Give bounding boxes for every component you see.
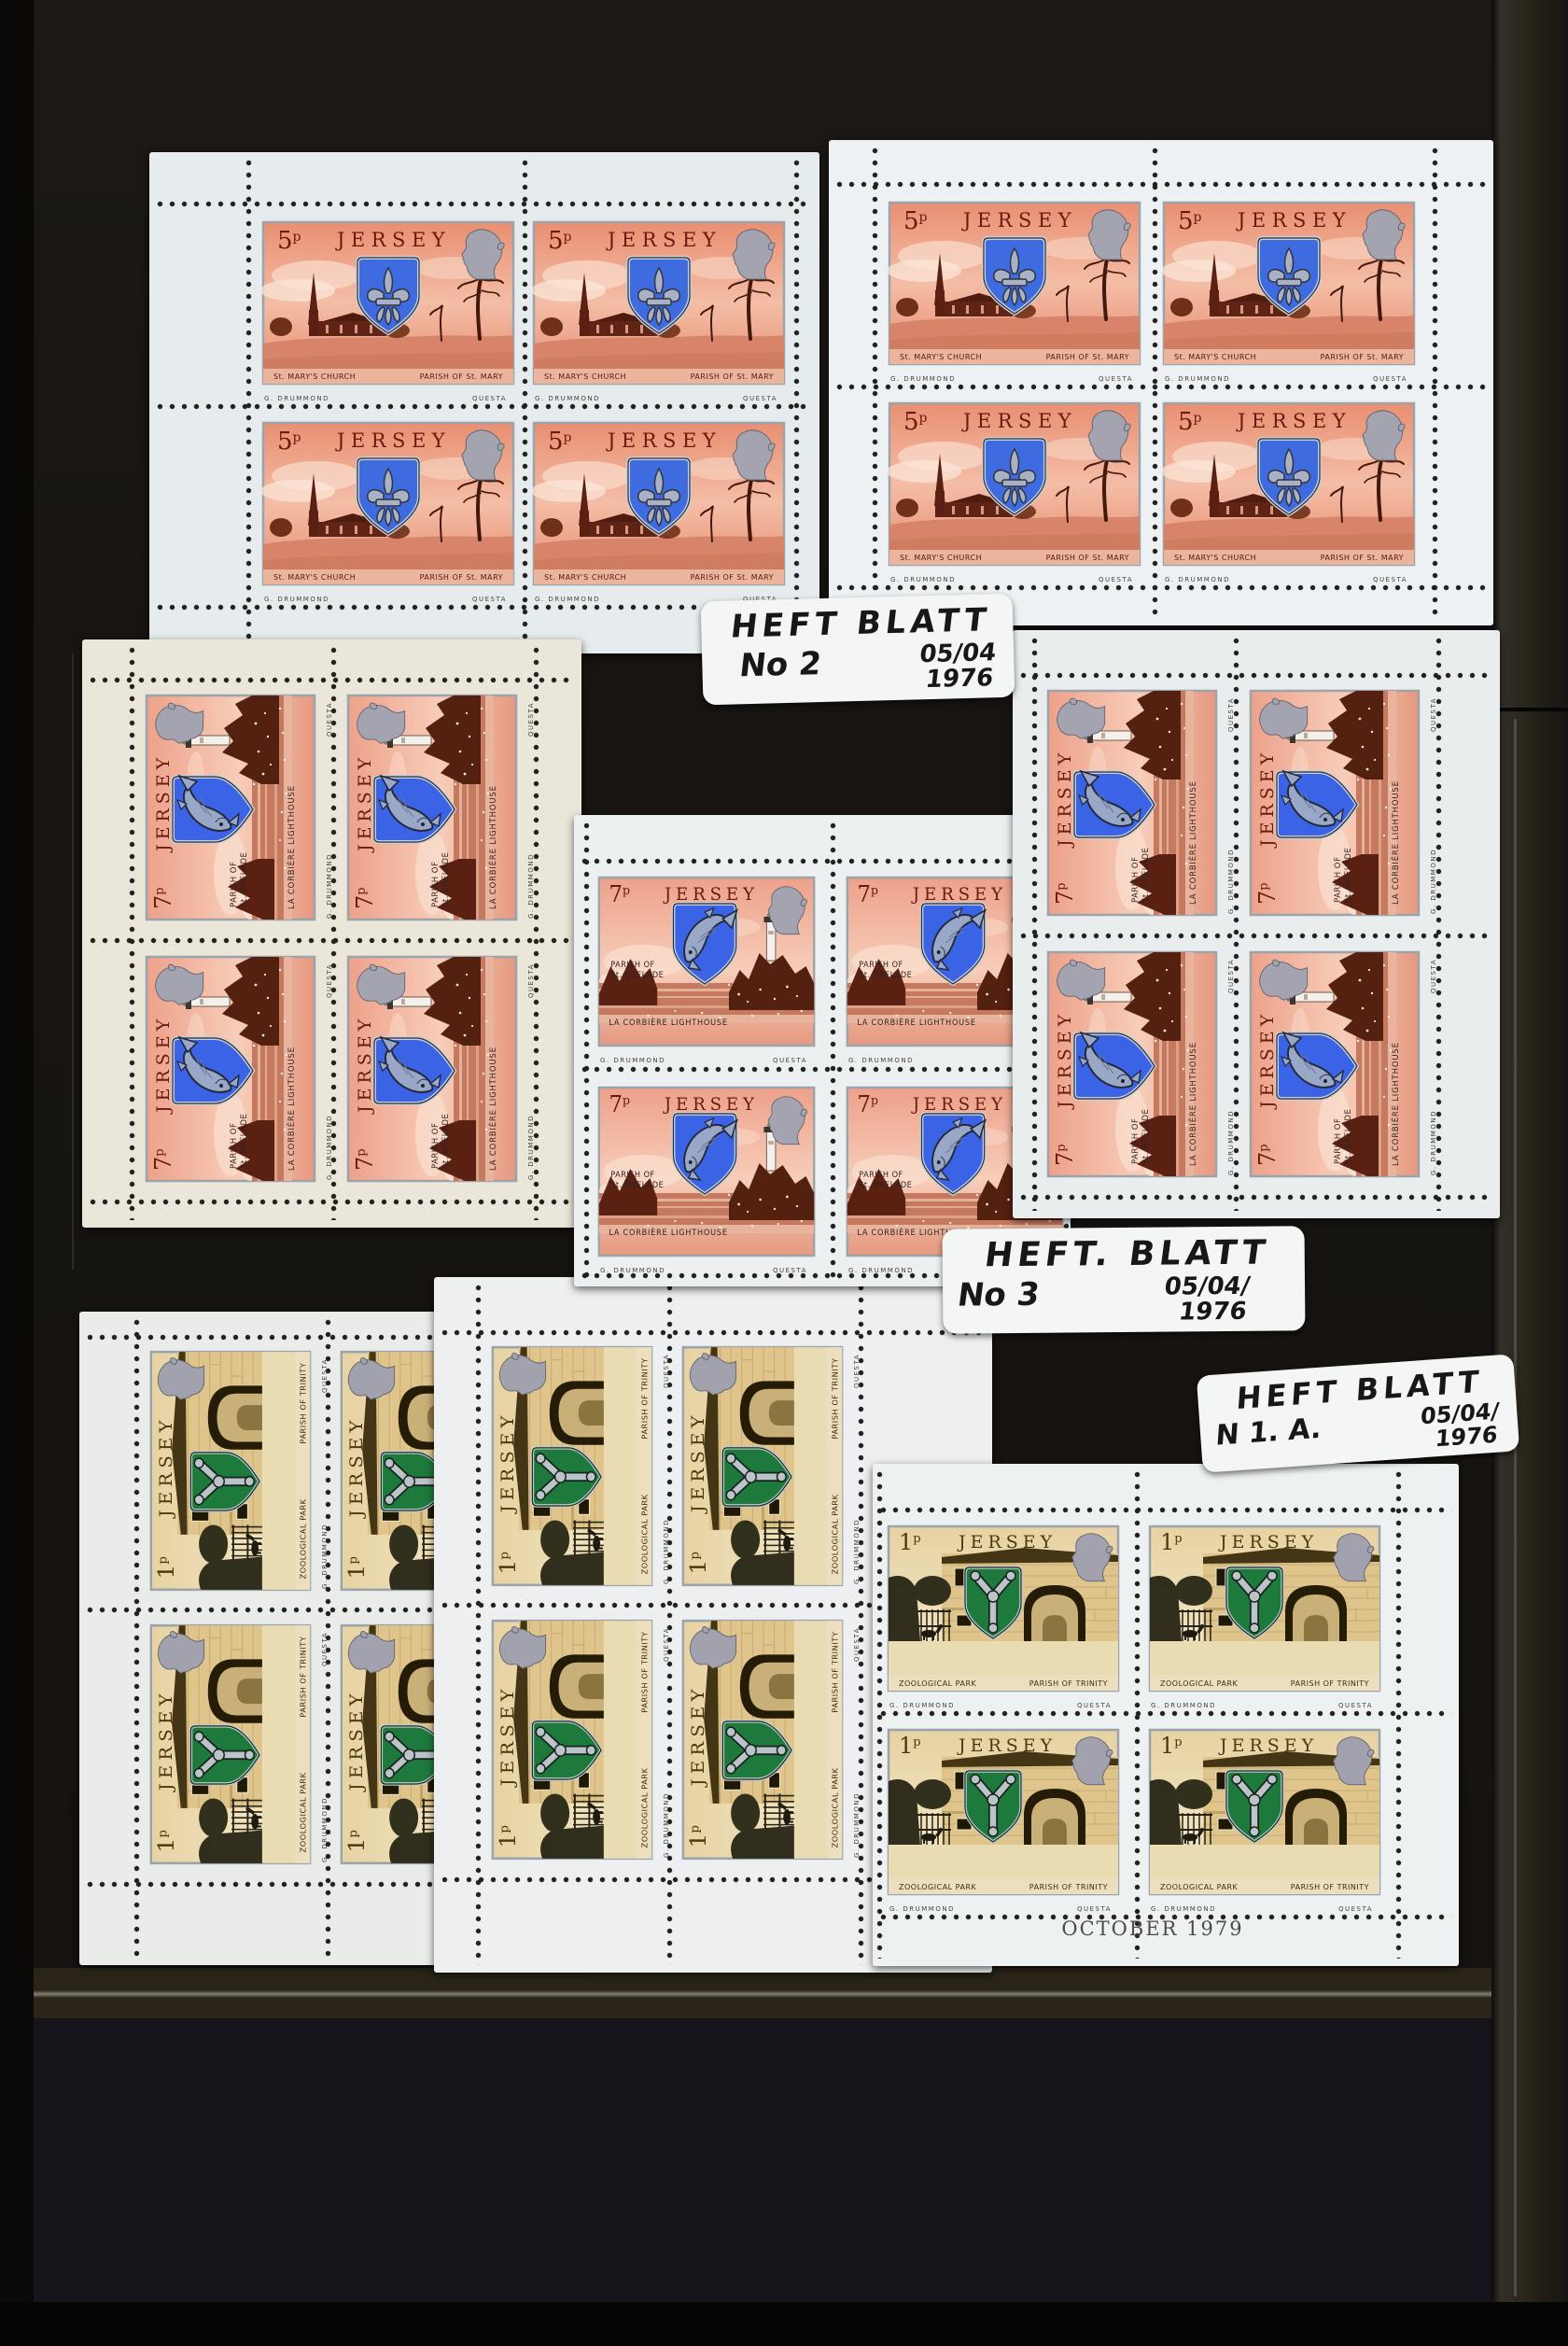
country-name: JERSEY bbox=[606, 429, 721, 452]
stamp-7p-rotated: 7p JERSEY PARISH OF St. BRELADE LA CORBI… bbox=[1246, 686, 1423, 920]
stamp-1p-design: 1p JERSEY ZOOLOGICAL PARK PARISH OF TRIN… bbox=[488, 1616, 656, 1863]
stamp-7p-rotated: 7p JERSEY PARISH OF St. BRELADE LA CORBI… bbox=[1246, 948, 1423, 1181]
stamp-7p: 7p JERSEY PARISH OF St. BRELADE LA CORBI… bbox=[595, 873, 819, 1050]
stamp-caption-right: PARISH OF TRINITY bbox=[832, 1632, 840, 1713]
stamp-caption-right: PARISH OF TRINITY bbox=[1029, 1883, 1108, 1891]
stamp-7p-rotated: 7p JERSEY PARISH OF St. BRELADE LA CORBI… bbox=[343, 691, 521, 924]
side-caption-2: St. BRELADE bbox=[610, 1180, 664, 1189]
label-number: No 2 bbox=[737, 645, 823, 684]
side-caption-2: St. BRELADE bbox=[1344, 848, 1353, 903]
sheetlet-5p-upper-right: 5p JERSEY St. MARY'S CHURCH PARISH OF St… bbox=[829, 140, 1493, 625]
stamp-caption-left: ZOOLOGICAL PARK bbox=[832, 1494, 840, 1574]
side-caption-2: St. BRELADE bbox=[1344, 1109, 1353, 1164]
side-caption-1: PARISH OF bbox=[610, 1170, 654, 1179]
pocket-strip-highlight bbox=[34, 1990, 1491, 1998]
stamp-7p-design: 7p JERSEY PARISH OF St. BRELADE LA CORBI… bbox=[343, 691, 521, 924]
designer-credit: G. DRUMMOND bbox=[853, 1519, 861, 1584]
side-caption-1: PARISH OF bbox=[431, 862, 441, 907]
stamp-caption-left: St. MARY'S CHURCH bbox=[900, 554, 982, 562]
stamp-caption-right: PARISH OF TRINITY bbox=[1291, 1679, 1369, 1688]
printer-credit: QUESTA bbox=[1227, 959, 1235, 993]
country-name: JERSEY bbox=[1218, 1735, 1318, 1756]
designer-credit: G. DRUMMOND bbox=[889, 1702, 955, 1709]
country-name: JERSEY bbox=[957, 1532, 1057, 1552]
stamp-7p-rotated: 7p JERSEY PARISH OF St. BRELADE LA CORBI… bbox=[1043, 686, 1221, 920]
designer-credit: G. DRUMMOND bbox=[889, 1905, 955, 1913]
designer-credit: G. DRUMMOND bbox=[848, 1267, 914, 1274]
sheetlet-7p-right: 7p JERSEY PARISH OF St. BRELADE LA CORBI… bbox=[1013, 630, 1500, 1218]
printer-credit: QUESTA bbox=[1338, 1905, 1373, 1913]
stamp-caption-left: ZOOLOGICAL PARK bbox=[1160, 1679, 1239, 1688]
stamp-caption: LA CORBIÈRE LIGHTHOUSE bbox=[857, 1017, 975, 1027]
designer-credit: G. DRUMMOND bbox=[600, 1267, 665, 1274]
stamp-7p-design: 7p JERSEY PARISH OF St. BRELADE LA CORBI… bbox=[142, 691, 319, 924]
side-caption-1: PARISH OF bbox=[230, 862, 239, 907]
stamp-5p: 5p JERSEY St. MARY'S CHURCH PARISH OF St… bbox=[1159, 399, 1419, 569]
designer-credit: G. DRUMMOND bbox=[527, 1115, 535, 1180]
country-name: JERSEY bbox=[153, 753, 174, 853]
stamp-caption-left: St. MARY'S CHURCH bbox=[1174, 554, 1256, 562]
side-caption-1: PARISH OF bbox=[431, 1123, 441, 1169]
stamp-5p-design: 5p JERSEY St. MARY'S CHURCH PARISH OF St… bbox=[529, 418, 789, 589]
stamp-caption: LA CORBIÈRE LIGHTHOUSE bbox=[609, 1017, 727, 1027]
country-name: JERSEY bbox=[1218, 1532, 1318, 1552]
stamp-caption-right: PARISH OF TRINITY bbox=[1029, 1679, 1108, 1688]
stamp-7p: 7p JERSEY PARISH OF St. BRELADE LA CORBI… bbox=[595, 1083, 819, 1260]
printer-credit: QUESTA bbox=[1430, 959, 1437, 993]
stamp-caption-right: PARISH OF St. MARY bbox=[420, 573, 503, 582]
country-name: JERSEY bbox=[157, 1689, 176, 1792]
designer-credit: G. DRUMMOND bbox=[527, 853, 535, 919]
side-caption-1: PARISH OF bbox=[1334, 1118, 1343, 1164]
designer-credit: G. DRUMMOND bbox=[535, 395, 600, 402]
stamp-1p: 1p JERSEY ZOOLOGICAL PARK PARISH OF TRIN… bbox=[1145, 1725, 1384, 1899]
stamp-5p-design: 5p JERSEY St. MARY'S CHURCH PARISH OF St… bbox=[1159, 399, 1419, 569]
stamp-caption-left: ZOOLOGICAL PARK bbox=[899, 1883, 977, 1891]
stamp-caption-left: ZOOLOGICAL PARK bbox=[300, 1498, 308, 1579]
page-lower-area bbox=[34, 2018, 1491, 2302]
label-number: No 3 bbox=[956, 1276, 1043, 1314]
side-caption-1: PARISH OF bbox=[859, 1170, 903, 1179]
designer-credit: G. DRUMMOND bbox=[326, 1115, 333, 1180]
stamp-caption-right: PARISH OF St. MARY bbox=[1046, 353, 1129, 361]
stamp-caption: LA CORBIÈRE LIGHTHOUSE bbox=[1390, 780, 1401, 905]
stamp-7p-design: 7p JERSEY PARISH OF St. BRELADE LA CORBI… bbox=[1246, 686, 1423, 920]
stamp-7p-rotated: 7p JERSEY PARISH OF St. BRELADE LA CORBI… bbox=[142, 952, 319, 1186]
stamp-5p: 5p JERSEY St. MARY'S CHURCH PARISH OF St… bbox=[885, 198, 1144, 369]
designer-credit: G. DRUMMOND bbox=[1165, 576, 1230, 583]
side-caption-1: PARISH OF bbox=[859, 960, 903, 969]
side-caption-2: St. BRELADE bbox=[859, 1180, 912, 1189]
country-name: JERSEY bbox=[663, 885, 759, 905]
stamp-7p-rotated: 7p JERSEY PARISH OF St. BRELADE LA CORBI… bbox=[142, 691, 319, 924]
label-number: N 1. A. bbox=[1214, 1412, 1323, 1453]
stamp-caption: LA CORBIÈRE LIGHTHOUSE bbox=[1187, 780, 1198, 905]
stamp-5p: 5p JERSEY St. MARY'S CHURCH PARISH OF St… bbox=[885, 399, 1144, 569]
country-name: JERSEY bbox=[335, 229, 451, 251]
designer-credit: G. DRUMMOND bbox=[1151, 1702, 1216, 1709]
printer-credit: QUESTA bbox=[773, 1267, 807, 1274]
designer-credit: G. DRUMMOND bbox=[663, 1792, 670, 1858]
stamp-7p-design: 7p JERSEY PARISH OF St. BRELADE LA CORBI… bbox=[595, 1083, 819, 1260]
pocket-seam bbox=[1491, 708, 1568, 711]
stamp-1p-rotated: 1p JERSEY ZOOLOGICAL PARK PARISH OF TRIN… bbox=[488, 1616, 656, 1863]
stamp-caption-left: ZOOLOGICAL PARK bbox=[832, 1767, 840, 1847]
side-caption-2: St. BRELADE bbox=[859, 970, 912, 979]
stamp-5p: 5p JERSEY St. MARY'S CHURCH PARISH OF St… bbox=[529, 218, 789, 388]
side-caption-2: St. BRELADE bbox=[1141, 848, 1151, 903]
stamp-5p: 5p JERSEY St. MARY'S CHURCH PARISH OF St… bbox=[259, 218, 518, 388]
country-name: JERSEY bbox=[689, 1684, 708, 1788]
handwritten-label-n1a: HEFT BLATT N 1. A. 05/04/ 1976 bbox=[1197, 1354, 1519, 1473]
page-right-edge bbox=[1491, 0, 1568, 2346]
designer-credit: G. DRUMMOND bbox=[264, 596, 329, 603]
designer-credit: G. DRUMMOND bbox=[1227, 1110, 1235, 1175]
stamp-1p-rotated: 1p JERSEY ZOOLOGICAL PARK PARISH OF TRIN… bbox=[679, 1342, 847, 1590]
stamp-caption-right: PARISH OF TRINITY bbox=[641, 1632, 650, 1713]
stamp-caption: LA CORBIÈRE LIGHTHOUSE bbox=[286, 1047, 297, 1171]
side-caption-2: St. BRELADE bbox=[441, 852, 451, 907]
printer-credit: QUESTA bbox=[527, 702, 535, 737]
stamp-1p-design: 1p JERSEY ZOOLOGICAL PARK PARISH OF TRIN… bbox=[1145, 1522, 1384, 1695]
printer-credit: QUESTA bbox=[326, 963, 333, 998]
stamp-5p: 5p JERSEY St. MARY'S CHURCH PARISH OF St… bbox=[259, 418, 518, 589]
stamp-1p-design: 1p JERSEY ZOOLOGICAL PARK PARISH OF TRIN… bbox=[884, 1522, 1123, 1695]
sheetlet-7p-centre: 7p JERSEY PARISH OF St. BRELADE LA CORBI… bbox=[574, 815, 1071, 1286]
stamp-caption-right: PARISH OF TRINITY bbox=[300, 1363, 308, 1444]
stamp-7p-rotated: 7p JERSEY PARISH OF St. BRELADE LA CORBI… bbox=[343, 952, 521, 1186]
stamp-caption-left: St. MARY'S CHURCH bbox=[273, 372, 356, 381]
designer-credit: G. DRUMMOND bbox=[1165, 375, 1230, 383]
stamp-caption-right: PARISH OF TRINITY bbox=[832, 1358, 840, 1440]
stamp-caption-right: PARISH OF St. MARY bbox=[691, 573, 774, 582]
side-caption-1: PARISH OF bbox=[1131, 857, 1141, 903]
sheetlet-1p-lower-right: 1p JERSEY ZOOLOGICAL PARK PARISH OF TRIN… bbox=[873, 1464, 1459, 1966]
stamp-5p-design: 5p JERSEY St. MARY'S CHURCH PARISH OF St… bbox=[885, 399, 1144, 569]
country-name: JERSEY bbox=[1236, 410, 1351, 432]
country-name: JERSEY bbox=[606, 229, 721, 251]
printer-credit: QUESTA bbox=[1338, 1702, 1373, 1709]
page-left-edge bbox=[0, 0, 34, 2346]
stamp-5p-design: 5p JERSEY St. MARY'S CHURCH PARISH OF St… bbox=[529, 218, 789, 388]
designer-credit: G. DRUMMOND bbox=[321, 1524, 329, 1589]
designer-credit: G. DRUMMOND bbox=[535, 596, 600, 603]
handwritten-label-no2: HEFT BLATT No 2 05/04 1976 bbox=[701, 594, 1015, 705]
sheet-margin-imprint: OCTOBER 1979 bbox=[1003, 1918, 1302, 1940]
printer-credit: QUESTA bbox=[1077, 1702, 1112, 1709]
country-name: JERSEY bbox=[347, 1415, 367, 1519]
country-name: JERSEY bbox=[663, 1095, 759, 1115]
country-name: JERSEY bbox=[153, 1015, 174, 1115]
sheetlet-5p-upper-left: 5p JERSEY St. MARY'S CHURCH PARISH OF St… bbox=[149, 152, 819, 653]
label-year: 1976 bbox=[1177, 1298, 1248, 1327]
stamp-1p: 1p JERSEY ZOOLOGICAL PARK PARISH OF TRIN… bbox=[884, 1725, 1123, 1899]
stamp-7p-design: 7p JERSEY PARISH OF St. BRELADE LA CORBI… bbox=[1043, 948, 1221, 1181]
country-name: JERSEY bbox=[335, 429, 451, 452]
printer-credit: QUESTA bbox=[1077, 1905, 1112, 1913]
stamp-caption-left: ZOOLOGICAL PARK bbox=[641, 1494, 650, 1574]
stamp-5p-design: 5p JERSEY St. MARY'S CHURCH PARISH OF St… bbox=[259, 418, 518, 589]
country-name: JERSEY bbox=[957, 1735, 1057, 1756]
designer-credit: G. DRUMMOND bbox=[848, 1057, 914, 1064]
stamp-caption: LA CORBIÈRE LIGHTHOUSE bbox=[609, 1227, 727, 1237]
designer-credit: G. DRUMMOND bbox=[1227, 849, 1235, 914]
country-name: JERSEY bbox=[1257, 749, 1278, 849]
stamp-1p-design: 1p JERSEY ZOOLOGICAL PARK PARISH OF TRIN… bbox=[679, 1616, 847, 1863]
designer-credit: G. DRUMMOND bbox=[853, 1792, 861, 1858]
stamp-1p-rotated: 1p JERSEY ZOOLOGICAL PARK PARISH OF TRIN… bbox=[147, 1621, 315, 1868]
printer-credit: QUESTA bbox=[1099, 576, 1133, 583]
printer-credit: QUESTA bbox=[472, 395, 507, 402]
printer-credit: QUESTA bbox=[743, 395, 777, 402]
stamp-1p: 1p JERSEY ZOOLOGICAL PARK PARISH OF TRIN… bbox=[1145, 1522, 1384, 1695]
sheetlet-7p-left: 7p JERSEY PARISH OF St. BRELADE LA CORBI… bbox=[82, 639, 581, 1228]
country-name: JERSEY bbox=[689, 1411, 708, 1514]
printer-credit: QUESTA bbox=[326, 702, 333, 737]
printer-credit: QUESTA bbox=[527, 963, 535, 998]
stamp-5p-design: 5p JERSEY St. MARY'S CHURCH PARISH OF St… bbox=[259, 218, 518, 388]
designer-credit: G. DRUMMOND bbox=[321, 1797, 329, 1862]
stamp-caption: LA CORBIÈRE LIGHTHOUSE bbox=[286, 785, 297, 909]
printer-credit: QUESTA bbox=[1373, 375, 1407, 383]
country-name: JERSEY bbox=[1055, 749, 1075, 849]
country-name: JERSEY bbox=[157, 1415, 176, 1519]
stamp-caption-right: PARISH OF St. MARY bbox=[1046, 554, 1129, 562]
printer-credit: QUESTA bbox=[663, 1354, 670, 1388]
stamp-caption-left: St. MARY'S CHURCH bbox=[900, 353, 982, 361]
stamp-caption: LA CORBIÈRE LIGHTHOUSE bbox=[487, 785, 498, 909]
country-name: JERSEY bbox=[1236, 209, 1351, 232]
stamp-caption-left: St. MARY'S CHURCH bbox=[544, 573, 626, 582]
side-caption-2: St. BRELADE bbox=[240, 1114, 249, 1169]
stamp-1p-rotated: 1p JERSEY ZOOLOGICAL PARK PARISH OF TRIN… bbox=[147, 1347, 315, 1594]
stamp-5p-design: 5p JERSEY St. MARY'S CHURCH PARISH OF St… bbox=[1159, 198, 1419, 369]
designer-credit: G. DRUMMOND bbox=[663, 1519, 670, 1584]
stamp-caption: LA CORBIÈRE LIGHTHOUSE bbox=[1187, 1042, 1198, 1166]
label-date: 05/04/ bbox=[1163, 1272, 1252, 1301]
printer-credit: QUESTA bbox=[853, 1627, 861, 1662]
country-name: JERSEY bbox=[961, 410, 1077, 432]
country-name: JERSEY bbox=[911, 1095, 1007, 1115]
label-year: 1976 bbox=[924, 664, 995, 694]
side-caption-1: PARISH OF bbox=[610, 960, 654, 969]
country-name: JERSEY bbox=[498, 1411, 518, 1514]
printer-credit: QUESTA bbox=[321, 1632, 329, 1666]
label-year: 1976 bbox=[1435, 1422, 1499, 1453]
designer-credit: G. DRUMMOND bbox=[1430, 1110, 1437, 1175]
country-name: JERSEY bbox=[1055, 1010, 1075, 1110]
stamp-7p-design: 7p JERSEY PARISH OF St. BRELADE LA CORBI… bbox=[1043, 686, 1221, 920]
side-caption-2: St. BRELADE bbox=[610, 970, 664, 979]
stamp-caption-right: PARISH OF St. MARY bbox=[691, 372, 774, 381]
country-name: JERSEY bbox=[498, 1684, 518, 1788]
country-name: JERSEY bbox=[355, 1015, 375, 1115]
stamp-1p-design: 1p JERSEY ZOOLOGICAL PARK PARISH OF TRIN… bbox=[147, 1621, 315, 1868]
stamp-caption-left: ZOOLOGICAL PARK bbox=[300, 1772, 308, 1852]
stamp-7p-design: 7p JERSEY PARISH OF St. BRELADE LA CORBI… bbox=[142, 952, 319, 1186]
stamp-caption-left: ZOOLOGICAL PARK bbox=[899, 1679, 977, 1688]
stamp-caption-right: PARISH OF St. MARY bbox=[1321, 554, 1404, 562]
stamp-5p: 5p JERSEY St. MARY'S CHURCH PARISH OF St… bbox=[1159, 198, 1419, 369]
side-caption-2: St. BRELADE bbox=[441, 1114, 451, 1169]
designer-credit: G. DRUMMOND bbox=[600, 1057, 665, 1064]
stamp-caption-right: PARISH OF TRINITY bbox=[300, 1637, 308, 1718]
country-name: JERSEY bbox=[911, 885, 1007, 905]
country-name: JERSEY bbox=[347, 1689, 367, 1792]
designer-credit: G. DRUMMOND bbox=[326, 853, 333, 919]
stamp-1p-design: 1p JERSEY ZOOLOGICAL PARK PARISH OF TRIN… bbox=[488, 1342, 656, 1590]
stamp-caption: LA CORBIÈRE LIGHTHOUSE bbox=[487, 1047, 498, 1171]
stamp-caption-right: PARISH OF TRINITY bbox=[1291, 1883, 1369, 1891]
stamp-5p: 5p JERSEY St. MARY'S CHURCH PARISH OF St… bbox=[529, 418, 789, 589]
stamp-caption: LA CORBIÈRE LIGHTHOUSE bbox=[1390, 1042, 1401, 1166]
page-bottom-shadow bbox=[0, 2302, 1568, 2346]
stamp-1p-design: 1p JERSEY ZOOLOGICAL PARK PARISH OF TRIN… bbox=[147, 1347, 315, 1594]
side-caption-1: PARISH OF bbox=[1131, 1118, 1141, 1164]
page-edge-highlight bbox=[1514, 719, 1517, 2297]
stamp-7p-design: 7p JERSEY PARISH OF St. BRELADE LA CORBI… bbox=[1246, 948, 1423, 1181]
designer-credit: G. DRUMMOND bbox=[890, 375, 956, 383]
side-caption-2: St. BRELADE bbox=[1141, 1109, 1151, 1164]
stamp-1p-design: 1p JERSEY ZOOLOGICAL PARK PARISH OF TRIN… bbox=[1145, 1725, 1384, 1899]
stamp-7p-design: 7p JERSEY PARISH OF St. BRELADE LA CORBI… bbox=[343, 952, 521, 1186]
printer-credit: QUESTA bbox=[1430, 697, 1437, 732]
side-caption-2: St. BRELADE bbox=[240, 852, 249, 907]
printer-credit: QUESTA bbox=[773, 1057, 807, 1064]
printer-credit: QUESTA bbox=[1227, 697, 1235, 732]
country-name: JERSEY bbox=[355, 753, 375, 853]
side-caption-1: PARISH OF bbox=[1334, 857, 1343, 903]
designer-credit: G. DRUMMOND bbox=[1430, 849, 1437, 914]
stamp-caption-left: ZOOLOGICAL PARK bbox=[641, 1767, 650, 1847]
stamp-7p-design: 7p JERSEY PARISH OF St. BRELADE LA CORBI… bbox=[595, 873, 819, 1050]
stamp-1p-rotated: 1p JERSEY ZOOLOGICAL PARK PARISH OF TRIN… bbox=[679, 1616, 847, 1863]
printer-credit: QUESTA bbox=[321, 1358, 329, 1393]
designer-credit: G. DRUMMOND bbox=[264, 395, 329, 402]
stamp-caption-left: ZOOLOGICAL PARK bbox=[1160, 1883, 1239, 1891]
stamp-1p-rotated: 1p JERSEY ZOOLOGICAL PARK PARISH OF TRIN… bbox=[488, 1342, 656, 1590]
country-name: JERSEY bbox=[961, 209, 1077, 232]
stamp-caption-right: PARISH OF TRINITY bbox=[641, 1358, 650, 1440]
stamp-caption-left: St. MARY'S CHURCH bbox=[1174, 353, 1256, 361]
handwritten-label-no3: HEFT. BLATT No 3 05/04/ 1976 bbox=[943, 1226, 1306, 1333]
stamp-1p-design: 1p JERSEY ZOOLOGICAL PARK PARISH OF TRIN… bbox=[884, 1725, 1123, 1899]
printer-credit: QUESTA bbox=[1373, 576, 1407, 583]
side-caption-1: PARISH OF bbox=[230, 1123, 239, 1169]
printer-credit: QUESTA bbox=[853, 1354, 861, 1388]
country-name: JERSEY bbox=[1257, 1010, 1278, 1110]
stockbook-page: 5p JERSEY St. MARY'S CHURCH PARISH OF St… bbox=[0, 0, 1568, 2346]
stamp-7p-rotated: 7p JERSEY PARISH OF St. BRELADE LA CORBI… bbox=[1043, 948, 1221, 1181]
stamp-caption-right: PARISH OF St. MARY bbox=[420, 372, 503, 381]
stamp-1p: 1p JERSEY ZOOLOGICAL PARK PARISH OF TRIN… bbox=[884, 1522, 1123, 1695]
designer-credit: G. DRUMMOND bbox=[1151, 1905, 1216, 1913]
stamp-1p-design: 1p JERSEY ZOOLOGICAL PARK PARISH OF TRIN… bbox=[679, 1342, 847, 1590]
stamp-caption-right: PARISH OF St. MARY bbox=[1321, 353, 1404, 361]
label-title: HEFT. BLATT bbox=[960, 1233, 1294, 1274]
stamp-caption-left: St. MARY'S CHURCH bbox=[544, 372, 626, 381]
page-crease bbox=[72, 653, 74, 1270]
stamp-caption-left: St. MARY'S CHURCH bbox=[273, 573, 356, 582]
printer-credit: QUESTA bbox=[472, 596, 507, 603]
stamp-5p-design: 5p JERSEY St. MARY'S CHURCH PARISH OF St… bbox=[885, 198, 1144, 369]
printer-credit: QUESTA bbox=[1099, 375, 1133, 383]
designer-credit: G. DRUMMOND bbox=[890, 576, 956, 583]
printer-credit: QUESTA bbox=[663, 1627, 670, 1662]
